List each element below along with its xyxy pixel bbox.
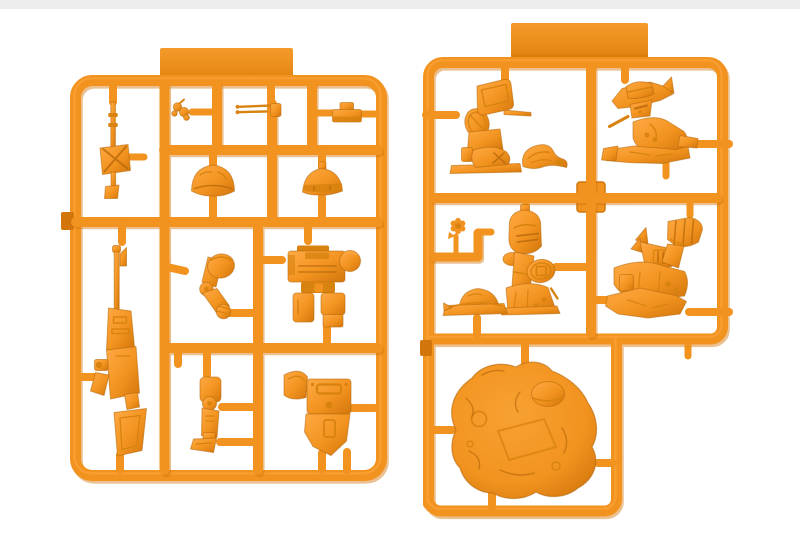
sprue-render [0, 0, 800, 550]
top-edge-strip [0, 0, 800, 9]
label-tab [511, 23, 648, 59]
runner-junction-tab [420, 340, 432, 356]
product-image [0, 0, 800, 550]
